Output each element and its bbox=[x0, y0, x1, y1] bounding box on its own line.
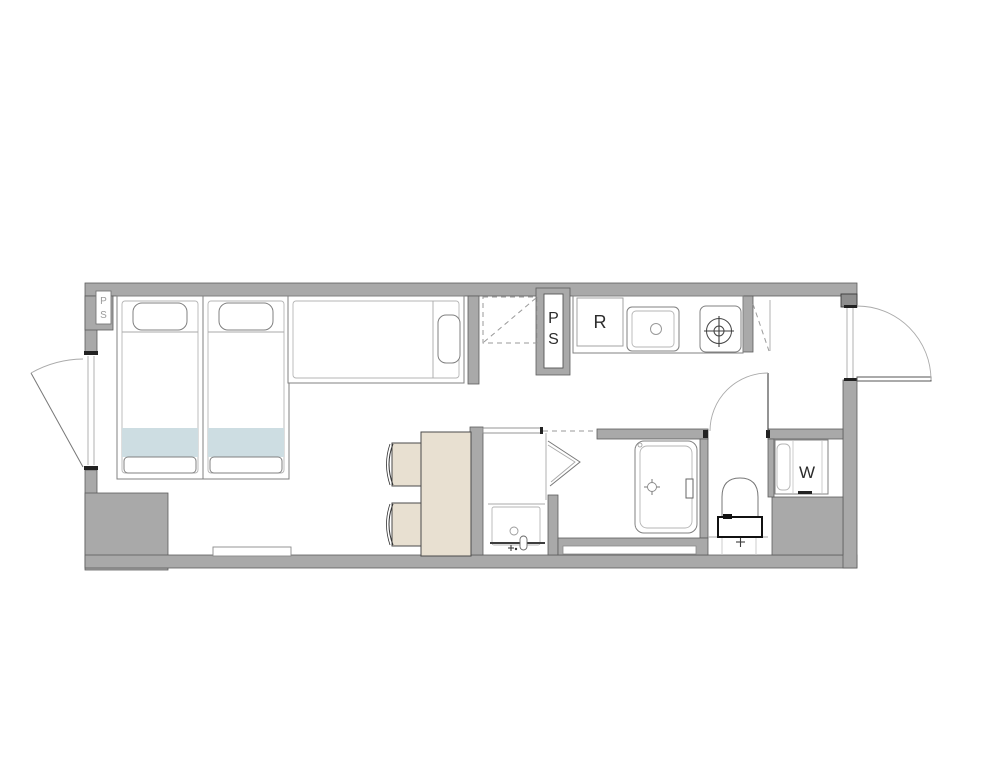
wall-washroom-right bbox=[548, 495, 558, 555]
entrance-jamb-tick bbox=[844, 378, 857, 381]
window-jamb-tick bbox=[84, 351, 98, 355]
ps-corner-label-p: P bbox=[100, 296, 107, 307]
wall-hall-bottom bbox=[768, 429, 843, 439]
bathroom-threshold bbox=[563, 546, 696, 554]
wall-bathroom-top bbox=[597, 429, 708, 439]
entrance-swing-arc bbox=[857, 306, 931, 380]
wall-bottom bbox=[85, 555, 857, 568]
washer-tick bbox=[798, 491, 812, 494]
baseboard-detail bbox=[213, 547, 291, 556]
pillow bbox=[438, 315, 460, 363]
window-leaf bbox=[31, 373, 83, 467]
toilet-handle bbox=[723, 514, 732, 519]
floor-plan: P S P S R bbox=[0, 0, 1000, 759]
mirror-diagonal-dashed bbox=[753, 304, 769, 351]
genkan-mirror bbox=[753, 300, 770, 351]
stove bbox=[700, 306, 741, 352]
entrance-door-leaf bbox=[857, 377, 931, 381]
sink-drain bbox=[651, 324, 662, 335]
bed-foot bbox=[124, 457, 196, 473]
balcony-window bbox=[31, 351, 98, 470]
bed-blanket bbox=[208, 428, 284, 457]
drain bbox=[648, 483, 657, 492]
window-opening bbox=[85, 353, 97, 470]
chair-2 bbox=[387, 503, 422, 546]
window-jamb-tick bbox=[84, 466, 98, 470]
basin-counter bbox=[492, 507, 540, 545]
wall-block-bottom-right bbox=[772, 497, 843, 555]
wall-kitchen-right bbox=[743, 296, 753, 352]
pillow bbox=[133, 303, 187, 330]
bed-foot bbox=[210, 457, 282, 473]
basin-faucet bbox=[520, 536, 527, 550]
table-top bbox=[421, 432, 471, 556]
ps-main-label-s: S bbox=[548, 331, 559, 348]
ps-corner-label-s: S bbox=[100, 310, 107, 321]
washbasin bbox=[488, 504, 545, 551]
washer-label: W bbox=[799, 463, 815, 482]
pillar-bed3 bbox=[468, 296, 479, 384]
door-jamb-tick bbox=[703, 430, 708, 438]
stove-outline bbox=[700, 306, 741, 352]
toilet-door bbox=[710, 373, 768, 431]
toilet-door-arc bbox=[710, 373, 768, 431]
wall-right-lower bbox=[843, 380, 857, 568]
refrigerator-label: R bbox=[594, 312, 607, 332]
chair-seat bbox=[392, 503, 421, 546]
dining-table bbox=[421, 432, 471, 556]
bed-3 bbox=[288, 296, 464, 383]
closet-dashed bbox=[483, 297, 537, 343]
wall-living-washroom bbox=[470, 427, 483, 555]
bathtub-handle bbox=[686, 479, 693, 498]
chair-1 bbox=[387, 443, 422, 486]
basin-dot bbox=[515, 548, 517, 550]
wall-tick bbox=[540, 427, 543, 434]
toilet-tank bbox=[718, 517, 762, 537]
window-swing-arc bbox=[31, 359, 83, 373]
bathroom bbox=[548, 441, 697, 533]
bathroom-folding-door bbox=[548, 441, 580, 486]
pipe-shaft-corner: P S bbox=[96, 291, 111, 324]
basin-drain bbox=[510, 527, 518, 535]
door-jamb-tick bbox=[766, 430, 770, 438]
bed-blanket bbox=[122, 428, 198, 457]
bathtub bbox=[635, 441, 697, 533]
pillow bbox=[219, 303, 273, 330]
wall-toilet-washer bbox=[768, 439, 774, 497]
entrance-opening bbox=[844, 307, 857, 380]
bed-1 bbox=[117, 296, 203, 479]
wall-top bbox=[85, 283, 857, 296]
toilet bbox=[718, 478, 762, 547]
entrance-door bbox=[844, 305, 931, 381]
entrance-jamb-tick bbox=[844, 305, 857, 308]
floor-plan-page: P S P S R bbox=[0, 0, 1000, 759]
bed-2 bbox=[203, 296, 289, 479]
kitchen-counter: R bbox=[573, 296, 743, 353]
kitchen-sink bbox=[627, 307, 679, 351]
closet-diagonal bbox=[484, 298, 536, 342]
washer-space: W bbox=[775, 440, 828, 494]
wall-washroom-top-thin bbox=[483, 428, 542, 433]
wall-bathroom-toilet bbox=[700, 439, 708, 538]
toilet-room bbox=[708, 478, 768, 555]
pipe-shaft-main: P S bbox=[544, 294, 563, 368]
chair-seat bbox=[392, 443, 421, 486]
ps-main-label-p: P bbox=[548, 310, 559, 327]
